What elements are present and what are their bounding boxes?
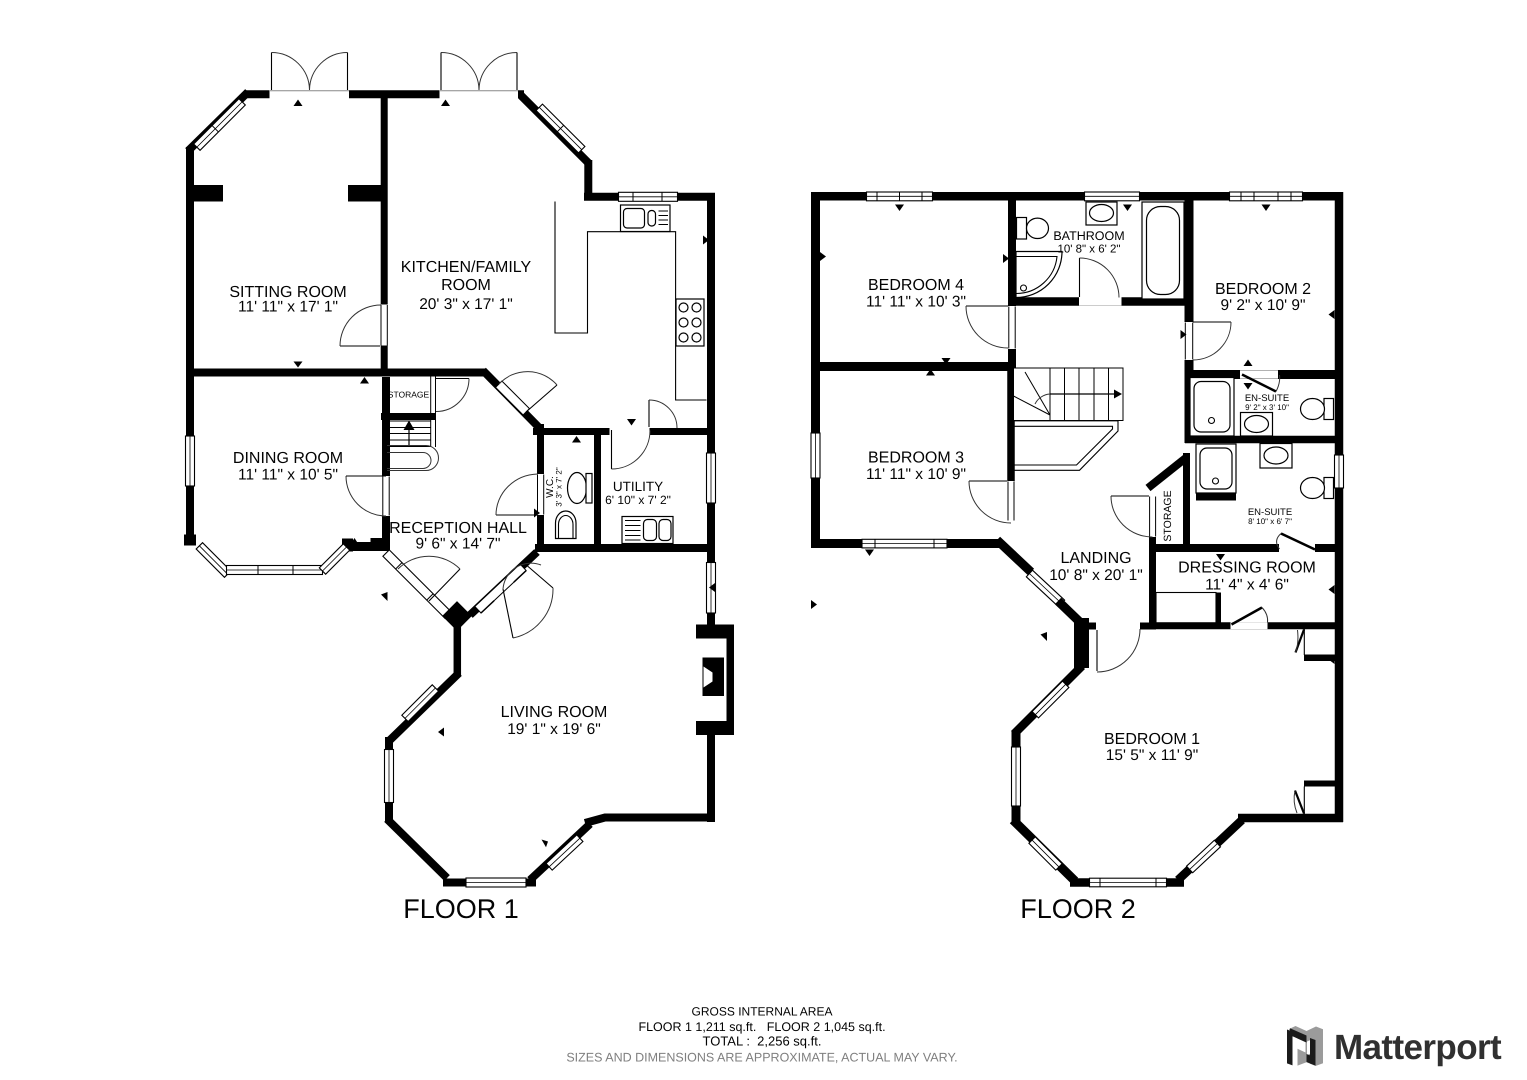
- svg-text:20' 3" x 17' 1": 20' 3" x 17' 1": [419, 296, 513, 313]
- svg-text:BEDROOM 2: BEDROOM 2: [1215, 281, 1311, 298]
- svg-text:11' 11" x 17' 1": 11' 11" x 17' 1": [238, 299, 338, 316]
- svg-text:BEDROOM 1: BEDROOM 1: [1104, 731, 1200, 748]
- svg-text:FLOOR 1: FLOOR 1: [403, 894, 519, 924]
- svg-text:RECEPTION HALL: RECEPTION HALL: [389, 520, 527, 537]
- svg-text:DINING ROOM: DINING ROOM: [233, 450, 343, 467]
- svg-text:11' 11" x 10' 9": 11' 11" x 10' 9": [866, 466, 966, 483]
- svg-text:11' 11" x 10' 3": 11' 11" x 10' 3": [866, 294, 966, 311]
- svg-text:11' 4" x 4' 6": 11' 4" x 4' 6": [1205, 577, 1289, 594]
- svg-text:GROSS INTERNAL AREA: GROSS INTERNAL AREA: [692, 1005, 833, 1019]
- svg-text:19' 1" x 19' 6": 19' 1" x 19' 6": [507, 721, 601, 738]
- svg-text:3' 3" x 7' 2": 3' 3" x 7' 2": [555, 467, 564, 507]
- svg-text:ROOM: ROOM: [441, 277, 491, 294]
- svg-text:15' 5" x 11' 9": 15' 5" x 11' 9": [1106, 747, 1198, 764]
- svg-text:10' 8" x 20' 1": 10' 8" x 20' 1": [1049, 567, 1143, 584]
- svg-text:8' 10" x 6' 7": 8' 10" x 6' 7": [1248, 517, 1292, 526]
- svg-text:11' 11" x 10' 5": 11' 11" x 10' 5": [238, 467, 338, 484]
- svg-text:FLOOR 1 1,211 sq.ft. FLOOR 2: FLOOR 1 1,211 sq.ft. FLOOR 2 1,045 sq.ft…: [638, 1020, 885, 1034]
- svg-text:BEDROOM 3: BEDROOM 3: [868, 450, 964, 467]
- svg-text:FLOOR 2: FLOOR 2: [1020, 894, 1136, 924]
- svg-text:Matterport: Matterport: [1334, 1028, 1502, 1067]
- svg-text:SIZES AND DIMENSIONS ARE APPRO: SIZES AND DIMENSIONS ARE APPROXIMATE, AC…: [566, 1051, 957, 1065]
- svg-text:BATHROOM: BATHROOM: [1053, 229, 1124, 243]
- svg-text:6' 10" x 7' 2": 6' 10" x 7' 2": [605, 493, 671, 507]
- svg-text:LIVING ROOM: LIVING ROOM: [501, 704, 608, 721]
- svg-text:9' 2" x 3' 10": 9' 2" x 3' 10": [1245, 403, 1289, 412]
- svg-text:LANDING: LANDING: [1060, 550, 1131, 567]
- svg-text:STORAGE: STORAGE: [388, 390, 430, 400]
- svg-text:TOTAL : 2,256 sq.ft.: TOTAL : 2,256 sq.ft.: [703, 1034, 822, 1049]
- svg-text:9' 6" x 14' 7": 9' 6" x 14' 7": [415, 536, 500, 553]
- svg-text:DRESSING ROOM: DRESSING ROOM: [1178, 560, 1316, 577]
- svg-text:9' 2" x 10' 9": 9' 2" x 10' 9": [1220, 297, 1305, 314]
- svg-text:10' 8" x 6' 2": 10' 8" x 6' 2": [1057, 244, 1120, 256]
- svg-text:UTILITY: UTILITY: [613, 479, 663, 494]
- svg-text:STORAGE: STORAGE: [1162, 490, 1174, 541]
- svg-text:KITCHEN/FAMILY: KITCHEN/FAMILY: [401, 259, 532, 276]
- svg-text:BEDROOM 4: BEDROOM 4: [868, 277, 964, 294]
